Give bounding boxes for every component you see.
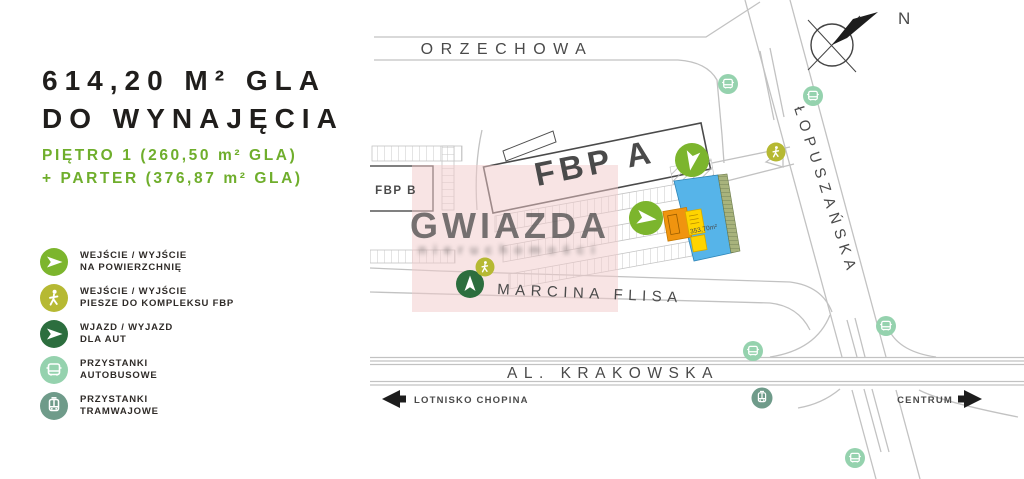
- bus-stop-icon: [845, 448, 865, 468]
- street-label-al-krakowska: AL. KRAKOWSKA: [507, 365, 719, 382]
- legend-item-tram-stops: PRZYSTANKITRAMWAJOWE: [40, 392, 234, 420]
- left-arrow-icon: [382, 390, 400, 408]
- car-entry-arrow-icon: [40, 320, 68, 348]
- page-title: 614,20 M² GLA DO WYNAJĘCIA: [42, 62, 344, 138]
- building-label-fbp-b: FBP B: [375, 185, 417, 197]
- compass-rose: N: [808, 9, 910, 72]
- page-subtitle: PIĘTRO 1 (260,50 m² GLA) + PARTER (376,8…: [42, 144, 303, 190]
- subtitle-line-1: PIĘTRO 1 (260,50 m² GLA): [42, 144, 303, 167]
- legend-item-surface-exit: WEJŚCIE / WYJŚCIENA POWIERZCHNIĘ: [40, 248, 234, 276]
- watermark-subtext: nieruchomości: [418, 242, 601, 257]
- north-arrow-icon: [832, 12, 878, 45]
- legend-label: WEJŚCIE / WYJŚCIENA POWIERZCHNIĘ: [80, 250, 187, 274]
- legend-label: WJAZD / WYJAZDDLA AUT: [80, 322, 173, 346]
- tram-icon: [40, 392, 68, 420]
- surface-exit-arrow-icon: [40, 248, 68, 276]
- subtitle-line-2: + PARTER (376,87 m² GLA): [42, 167, 303, 190]
- legend-label: PRZYSTANKIAUTOBUSOWE: [80, 358, 158, 382]
- title-line-1: 614,20 M² GLA: [42, 62, 344, 100]
- direction-west-label: LOTNISKO CHOPINA: [414, 395, 529, 406]
- flyer-page: 614,20 M² GLA DO WYNAJĘCIA PIĘTRO 1 (260…: [0, 0, 1024, 479]
- title-line-2: DO WYNAJĘCIA: [42, 100, 344, 138]
- tram-stop-icon: [752, 388, 773, 409]
- bus-stop-icon: [876, 316, 896, 336]
- legend-item-car-entry: WJAZD / WYJAZDDLA AUT: [40, 320, 234, 348]
- compass-label: N: [898, 9, 910, 28]
- legend-item-pedestrian: WEJŚCIE / WYJŚCIEPIESZE DO KOMPLEKSU FBP: [40, 284, 234, 312]
- street-label-orzechowa: ORZECHOWA: [421, 41, 594, 58]
- pedestrian-icon: [40, 284, 68, 312]
- pedestrian-icon: [767, 143, 786, 162]
- bus-icon: [40, 356, 68, 384]
- bus-stop-icon: [803, 86, 823, 106]
- direction-east-label: CENTRUM: [897, 395, 953, 406]
- legend-label: WEJŚCIE / WYJŚCIEPIESZE DO KOMPLEKSU FBP: [80, 286, 234, 310]
- legend-label: PRZYSTANKITRAMWAJOWE: [80, 394, 159, 418]
- right-arrow-icon: [964, 390, 982, 408]
- bus-stop-icon: [718, 74, 738, 94]
- direction-west: LOTNISKO CHOPINA: [382, 390, 529, 408]
- legend: WEJŚCIE / WYJŚCIENA POWIERZCHNIĘ WEJŚCIE…: [40, 248, 234, 420]
- direction-east: CENTRUM: [897, 390, 982, 408]
- site-map: 353,70m² GWIAZDA nieruchomości ORZECHOWA…: [370, 0, 1024, 479]
- bus-stop-icon: [743, 341, 763, 361]
- legend-item-bus-stops: PRZYSTANKIAUTOBUSOWE: [40, 356, 234, 384]
- watermark-text: GWIAZDA: [410, 205, 610, 246]
- pedestrian-icon: [476, 258, 495, 277]
